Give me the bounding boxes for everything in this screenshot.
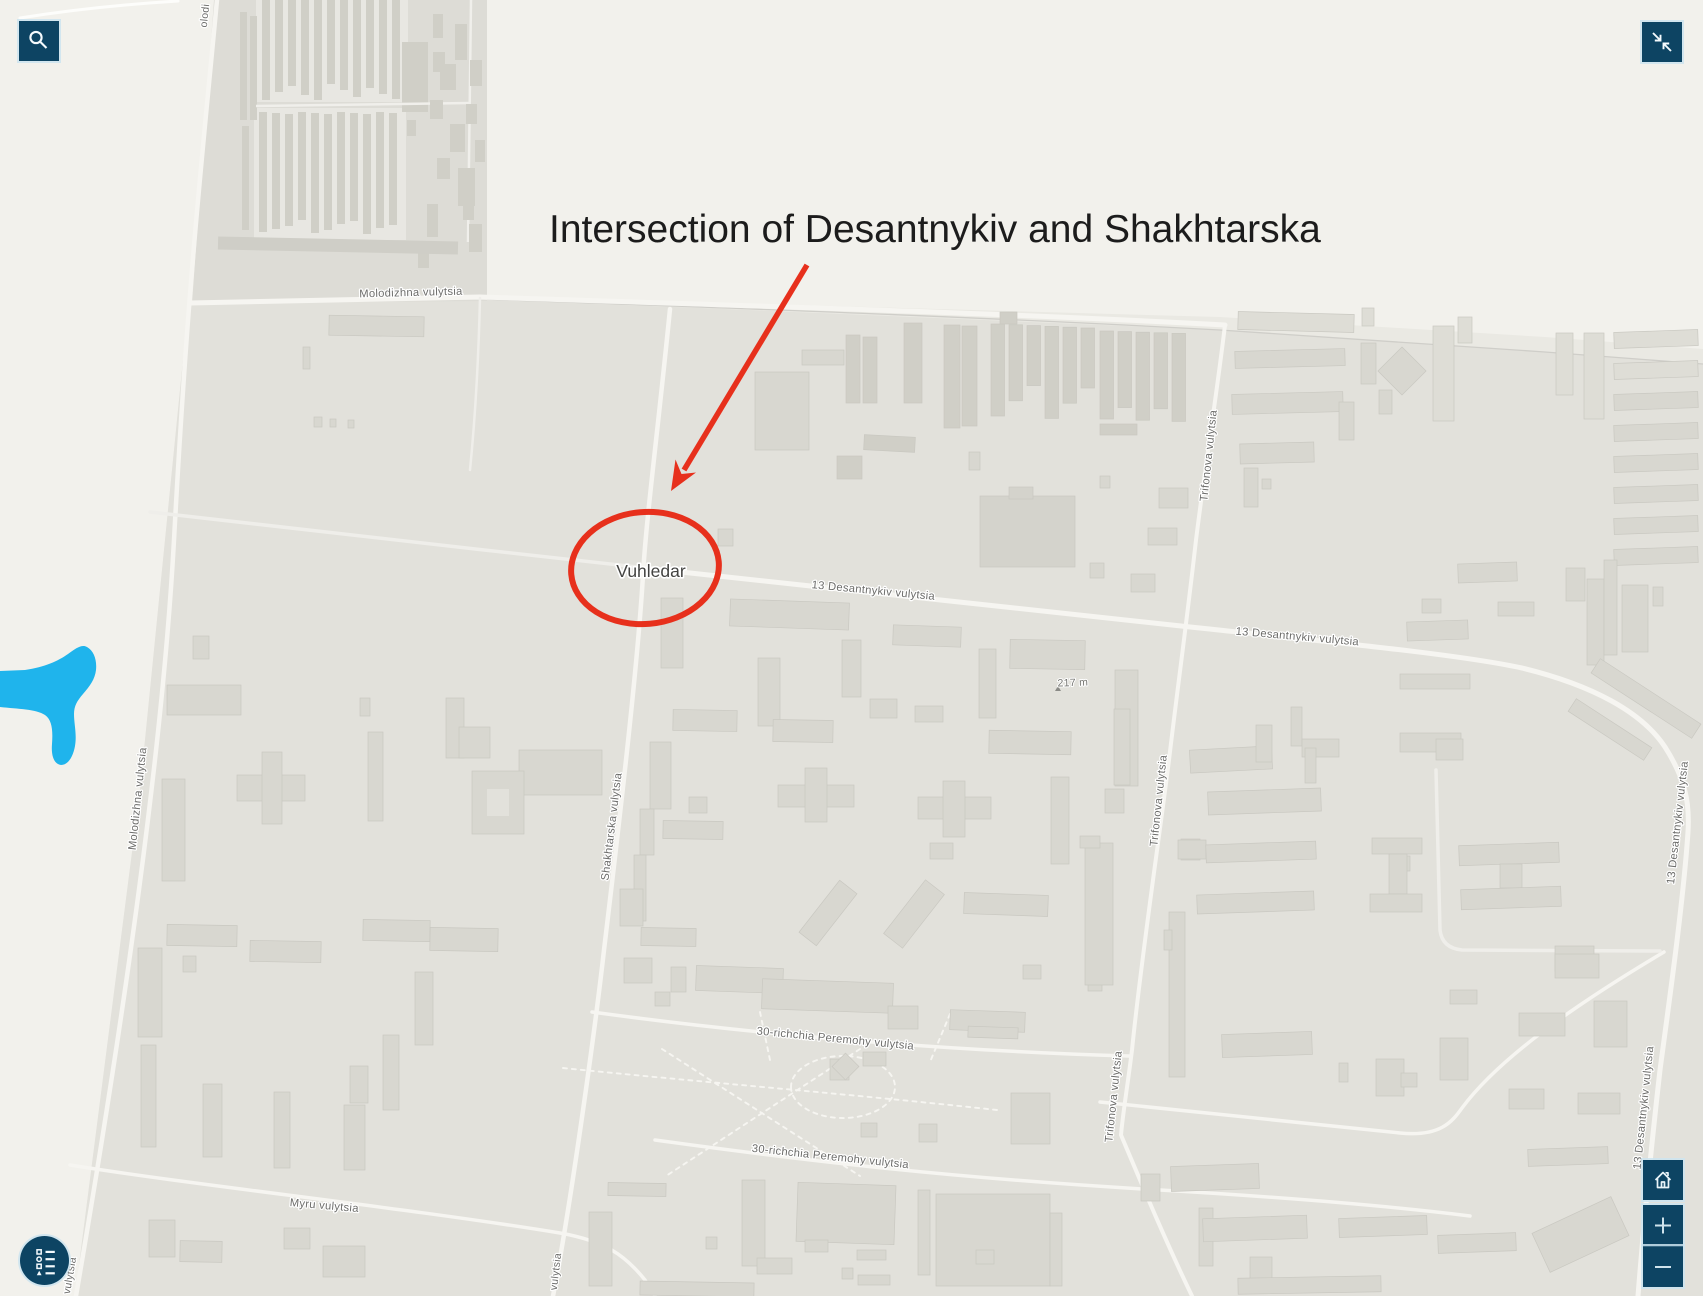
svg-text:olodi: olodi	[198, 3, 212, 28]
svg-text:Intersection of Desantnykiv an: Intersection of Desantnykiv and Shakhtar…	[549, 208, 1321, 251]
svg-text:217 m: 217 m	[1057, 676, 1088, 689]
svg-text:Vuhledar: Vuhledar	[616, 561, 686, 581]
